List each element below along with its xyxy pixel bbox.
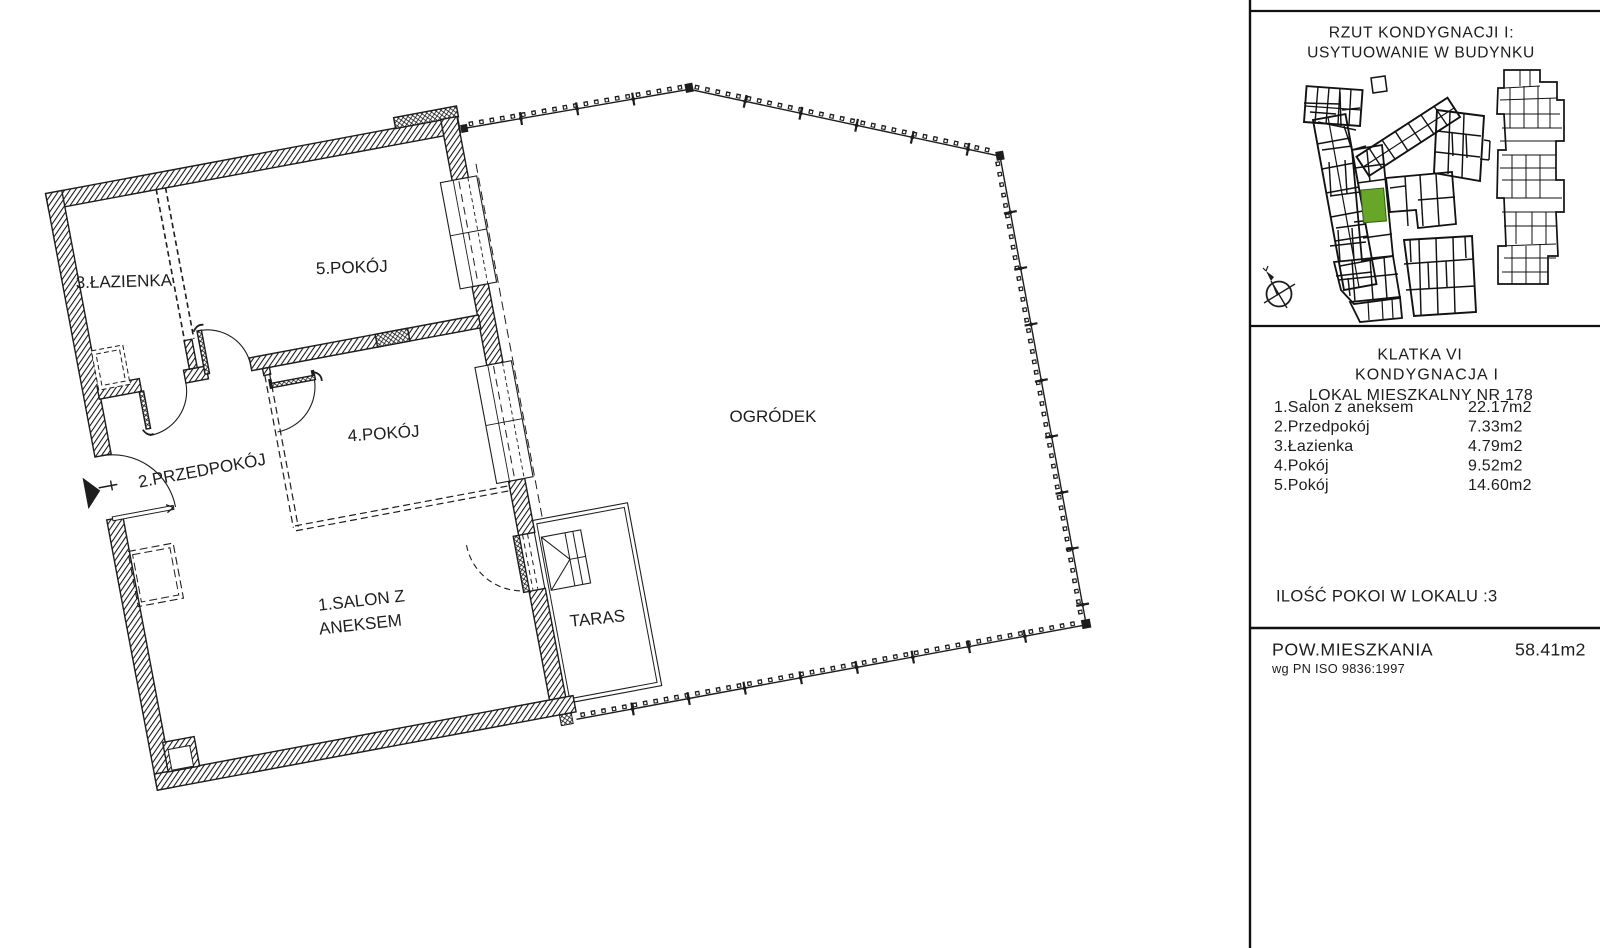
svg-text:3.ŁAZIENKA: 3.ŁAZIENKA	[75, 271, 172, 293]
svg-text:7.33m2: 7.33m2	[1468, 419, 1523, 436]
svg-text:wg PN ISO 9836:1997: wg PN ISO 9836:1997	[1271, 661, 1405, 676]
svg-text:3.Łazienka: 3.Łazienka	[1274, 438, 1353, 455]
svg-text:9.52m2: 9.52m2	[1468, 458, 1523, 475]
svg-text:4.79m2: 4.79m2	[1468, 438, 1523, 455]
svg-text:4.Pokój: 4.Pokój	[1274, 458, 1329, 475]
svg-text:5.POKÓJ: 5.POKÓJ	[316, 257, 388, 278]
svg-text:58.41m2: 58.41m2	[1515, 640, 1586, 660]
svg-text:KONDYGNACJA I: KONDYGNACJA I	[1355, 367, 1499, 384]
svg-text:USYTUOWANIE W BUDYNKU: USYTUOWANIE W BUDYNKU	[1307, 45, 1535, 62]
svg-text:14.60m2: 14.60m2	[1468, 477, 1532, 494]
svg-text:KLATKA VI: KLATKA VI	[1377, 347, 1462, 364]
svg-text:ILOŚĆ POKOI W LOKALU :3: ILOŚĆ POKOI W LOKALU :3	[1276, 587, 1497, 606]
svg-text:OGRÓDEK: OGRÓDEK	[730, 407, 818, 426]
svg-text:2.Przedpokój: 2.Przedpokój	[1274, 419, 1370, 436]
svg-text:1.Salon z aneksem: 1.Salon z aneksem	[1274, 399, 1413, 416]
svg-text:5.Pokój: 5.Pokój	[1274, 477, 1329, 494]
svg-text:POW.MIESZKANIA: POW.MIESZKANIA	[1272, 640, 1433, 660]
svg-text:22.17m2: 22.17m2	[1468, 399, 1532, 416]
svg-text:RZUT KONDYGNACJI I:: RZUT KONDYGNACJI I:	[1329, 25, 1515, 42]
